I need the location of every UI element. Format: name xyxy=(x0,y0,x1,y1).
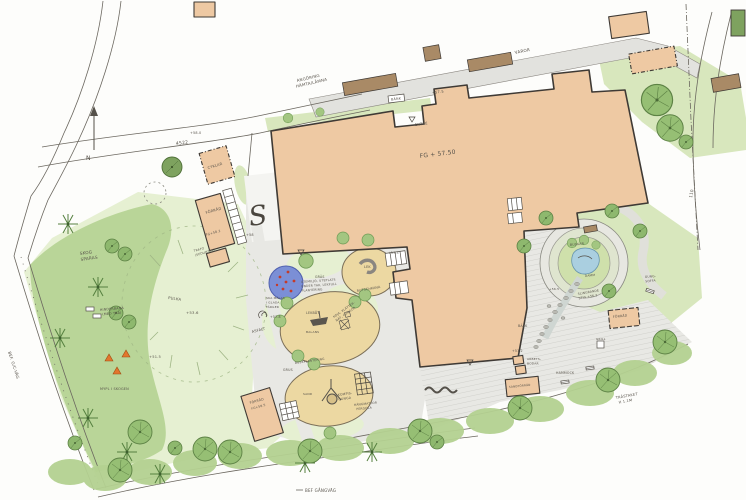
tree-icon xyxy=(430,435,444,449)
tree-icon xyxy=(118,247,132,261)
elev-572-label: +57.2 xyxy=(512,349,523,353)
elev-573-label: +57.3 xyxy=(388,251,399,255)
grill-spot xyxy=(597,341,604,348)
trastaket-label: TRÄSTAKET H 1.1M xyxy=(614,391,639,405)
svg-text:BODAR: BODAR xyxy=(527,361,539,365)
angoring-label: ANGÖRING HÄMTA/LÄMNA xyxy=(294,71,327,88)
hammock-label: HAMMOCK xyxy=(556,371,575,375)
north-arrow xyxy=(90,106,98,150)
gungsoffa-label: GUNG- SOFFA xyxy=(645,274,657,283)
tree-icon xyxy=(596,368,620,392)
tree-icon xyxy=(108,458,132,482)
lek-label: LEK xyxy=(364,265,371,269)
lekbat-label: LEKBÅT xyxy=(306,310,319,315)
svg-text:ARBETS-: ARBETS- xyxy=(527,357,541,361)
tree-icon xyxy=(679,135,693,149)
tree-icon xyxy=(122,315,136,329)
bush-icon xyxy=(324,427,336,439)
dim-110-label: 110 xyxy=(688,189,694,198)
bench-icon xyxy=(586,366,594,370)
elev-58-label: +58 xyxy=(246,233,254,237)
tree-icon xyxy=(633,224,647,238)
tree-icon xyxy=(653,330,677,354)
tree-icon xyxy=(298,439,322,463)
tree-icon xyxy=(517,239,531,253)
tree-icon xyxy=(657,115,683,141)
bush-icon xyxy=(592,241,600,249)
site-plan-canvas: BÄNK xyxy=(0,0,746,500)
grill-label: GRILL xyxy=(596,337,606,341)
bush-icon xyxy=(362,234,374,246)
tree-icon xyxy=(218,440,242,464)
tree-icon xyxy=(602,284,616,298)
odling-grid xyxy=(279,401,299,421)
tree-icon xyxy=(605,204,619,218)
tree-icon xyxy=(105,239,119,253)
svg-text:I GLADA: I GLADA xyxy=(266,300,280,304)
tree-icon xyxy=(168,441,182,455)
gangvag-label: BEF GÅNGVÄG xyxy=(305,488,336,493)
balans-label: BALANS xyxy=(306,330,319,334)
tree-icon xyxy=(162,157,182,177)
elev-536-label: +53.6 xyxy=(186,310,199,315)
elev-565-label: +56.5 xyxy=(549,287,559,291)
elev-578-label: +57.8 xyxy=(270,315,281,319)
road-left-edge xyxy=(48,1,121,200)
tree-icon xyxy=(508,396,532,420)
tree-icon xyxy=(68,436,82,450)
tree-icon xyxy=(641,84,672,115)
road-number-label: 4522 xyxy=(176,140,189,147)
bush-icon xyxy=(299,254,313,268)
hammock-icon xyxy=(561,380,569,384)
bush-icon xyxy=(283,113,293,123)
grus-label: GRUS xyxy=(283,368,293,372)
bush-icon xyxy=(337,232,349,244)
tree-icon xyxy=(128,420,152,444)
tree-icon xyxy=(193,437,217,461)
sand-label: SAND xyxy=(303,392,313,396)
pond xyxy=(572,248,599,274)
back-label: BÄCK xyxy=(518,323,528,328)
elev-515-label: +51.5 xyxy=(149,355,161,359)
north-label: N xyxy=(86,155,91,162)
varor-label: VAROR xyxy=(514,47,530,55)
svg-text:SKA MÅLAS: SKA MÅLAS xyxy=(266,295,285,300)
plaza-branch xyxy=(248,133,252,176)
tree-icon xyxy=(408,419,432,443)
site-plan-drawing: BÄNK xyxy=(0,0,746,500)
gc-vag-label: BEF. G/C-VÄG xyxy=(7,351,21,380)
svg-text:FÄRGER: FÄRGER xyxy=(266,304,279,309)
elev-580-label: +58.0 xyxy=(190,131,201,135)
bank-box: BÄNK xyxy=(388,94,405,103)
road-left-edge xyxy=(31,1,103,196)
bush-icon xyxy=(316,108,324,116)
road-left-lower xyxy=(14,196,31,256)
skogslek-label: MYPL I SKOGEN xyxy=(100,387,129,391)
tree-icon xyxy=(539,211,553,225)
